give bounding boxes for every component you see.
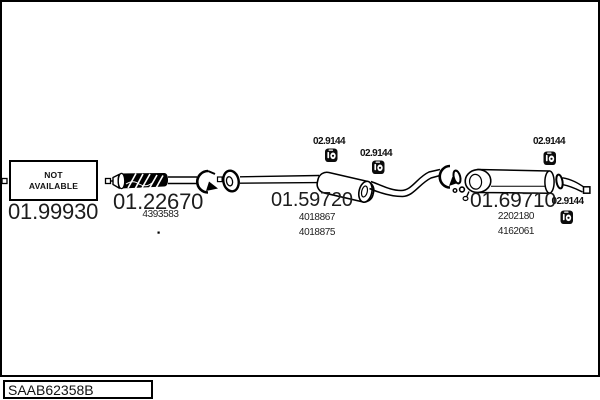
hanger-number-4: 02.9144	[548, 197, 588, 207]
oe-ref-4018875: 4018875	[296, 228, 338, 238]
part-number-59720: 01.59720	[271, 190, 353, 210]
flex-pipe-drawing	[106, 173, 198, 189]
hanger-clamp-icon	[544, 152, 557, 166]
not-available-box: NOT AVAILABLE	[9, 160, 98, 201]
front-pipe-drawing	[240, 176, 319, 184]
hanger-number-1: 02.9144	[309, 137, 349, 147]
drawing-code-box: SAAB62358B	[3, 380, 153, 399]
hanger-number-3: 02.9144	[529, 137, 569, 147]
not-available-line2: AVAILABLE	[29, 181, 78, 191]
oe-ref-4393583: 4393583	[140, 210, 182, 220]
oe-ref-4018867: 4018867	[296, 213, 338, 223]
oe-ref-4162061: 4162061	[495, 227, 537, 237]
hanger-clamp-icon	[561, 211, 574, 225]
hanger-number-2: 02.9144	[356, 149, 396, 159]
tail-pipe-drawing	[555, 174, 590, 193]
end-mount-square	[584, 187, 590, 193]
hanger-clamp-icon	[325, 149, 338, 163]
rear-joint-drawing	[440, 166, 465, 192]
exhaust-diagram-page: NOT AVAILABLE 01.99930 01.22670 01.59720…	[0, 0, 600, 400]
drawing-code: SAAB62358B	[8, 382, 94, 398]
part-number-69710: 01.69710	[470, 190, 556, 211]
not-available-line1: NOT	[44, 170, 63, 180]
flange-joint-drawing	[197, 169, 240, 193]
left-mount-square	[2, 179, 7, 184]
oe-ref-2202180: 2202180	[495, 212, 537, 222]
hanger-clamp-icon	[372, 161, 385, 175]
part-number-99930: 01.99930	[8, 201, 98, 223]
speck-dot	[158, 232, 160, 234]
